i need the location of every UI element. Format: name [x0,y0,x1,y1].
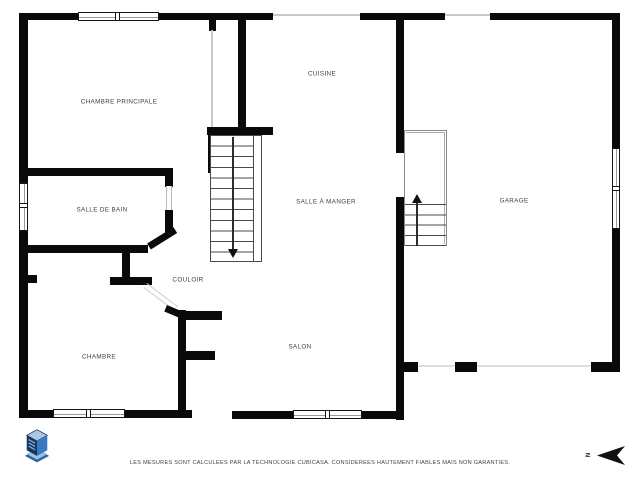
wall-segment [25,168,173,176]
room-label-salle-a-manger: SALLE À MANGER [296,199,356,206]
stair-direction-line [232,137,234,249]
bathroom-door-opening [166,186,172,210]
window-divider [115,13,120,20]
wall-segment [165,168,173,187]
window [53,409,125,418]
window-divider [613,186,619,191]
garage-door-opening-line [477,365,591,367]
room-label-couloir: COULOIR [172,277,203,284]
window-divider [86,410,91,417]
cubicasa-logo-icon [23,428,51,465]
wall-segment [612,229,620,372]
wall-segment [207,127,273,135]
north-label: N [586,453,592,457]
room-label-cuisine: CUISINE [308,71,336,78]
window [293,410,362,419]
room-label-chambre-principale: CHAMBRE PRINCIPALE [81,99,158,106]
wall-opening-line [445,14,490,16]
wall-segment [396,13,404,153]
window [612,148,620,229]
stairs-up-arrow-icon [412,194,422,203]
room-label-salon: SALON [288,344,311,351]
wall-segment [178,310,186,412]
wall-segment [23,245,148,253]
north-arrow-icon [596,446,626,465]
disclaimer-text: LES MESURES SONT CALCULEES PAR LA TECHNO… [130,460,510,466]
wall-segment [122,253,130,278]
wall-segment [19,231,28,418]
wall-segment [19,13,80,20]
room-label-salle-de-bain: SALLE DE BAIN [76,207,127,214]
window [78,12,159,21]
wall-segment [455,362,477,372]
staircase-stringer [253,136,261,261]
window-divider [325,411,330,418]
floor-plan-canvas: CHAMBRE PRINCIPALE CUISINE SALLE DE BAIN… [0,0,640,480]
stairs-down-arrow-icon [228,249,238,258]
stair-direction-line [416,203,418,246]
wall-segment [19,410,54,418]
wall-segment [612,13,620,149]
wall-opening-line [273,14,360,16]
wall-segment [232,411,294,419]
wall-segment [404,362,418,372]
wall-opening-line [211,30,213,128]
room-label-chambre: CHAMBRE [82,354,116,361]
window-divider [20,203,27,208]
wall-segment [28,275,37,283]
wall-segment [186,311,222,320]
wall-segment [19,13,28,184]
room-label-garage: GARAGE [499,198,528,205]
window [19,183,28,231]
wall-segment-diagonal [147,227,177,249]
wall-segment [490,13,620,20]
wall-segment [238,19,246,135]
wall-segment [186,351,215,360]
door-opening-line [418,365,455,367]
wall-segment [396,197,404,420]
